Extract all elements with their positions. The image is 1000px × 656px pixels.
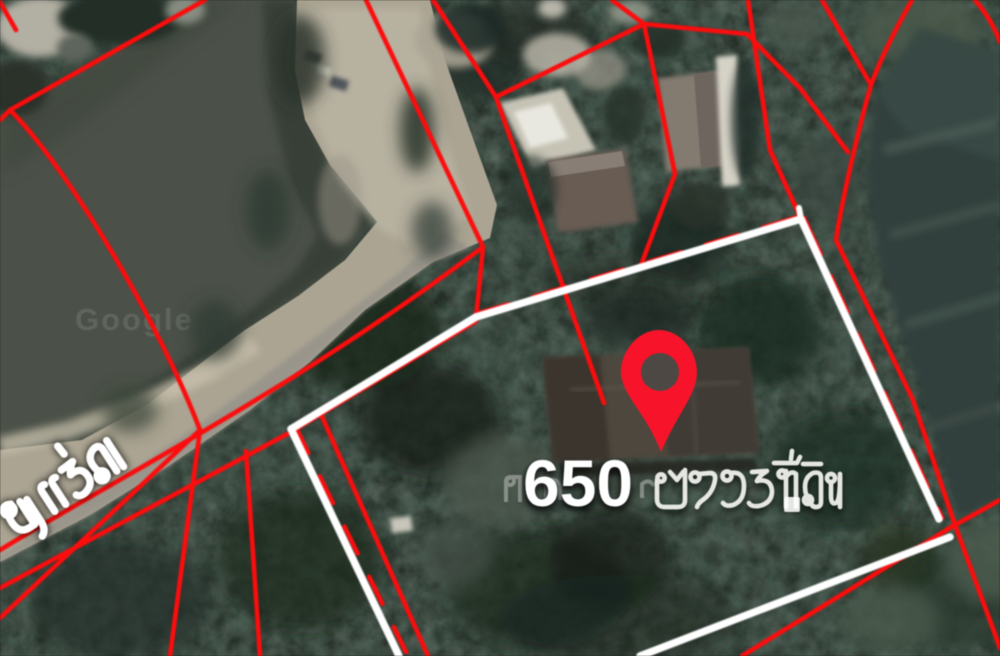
svg-text:Google: Google (75, 302, 194, 337)
svg-text:650: 650 (523, 446, 633, 520)
